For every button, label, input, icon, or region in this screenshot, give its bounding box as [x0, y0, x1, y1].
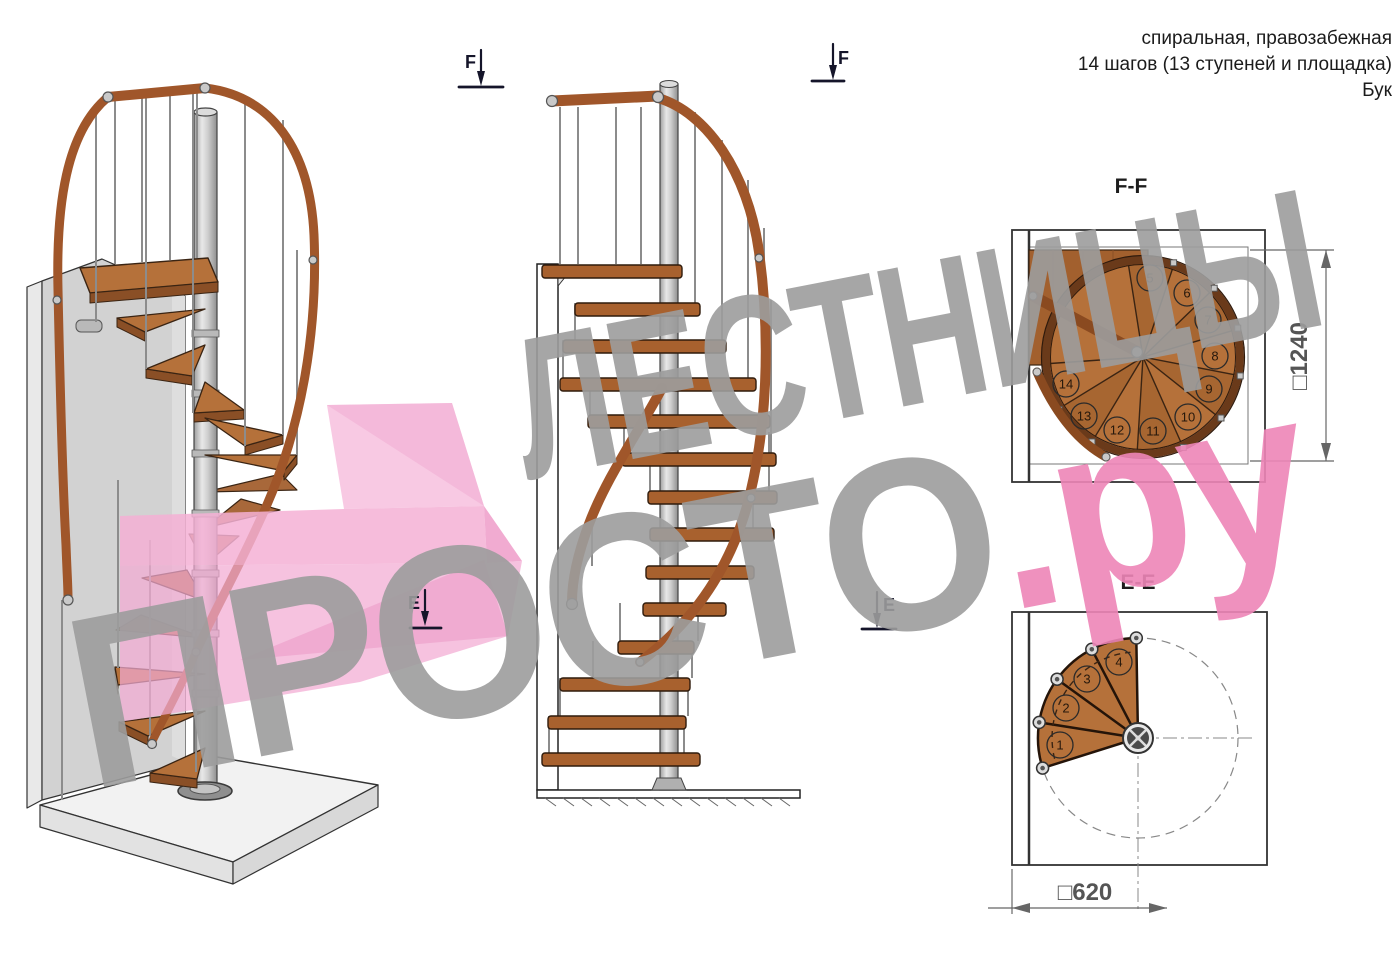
ff-step-number: 5 — [1146, 271, 1153, 286]
staircase-elevation-view — [537, 81, 800, 807]
section-ee-title: E-E — [1120, 571, 1155, 594]
ff-step-number: 9 — [1205, 382, 1212, 397]
ff-step-number: 11 — [1146, 424, 1160, 439]
ee-dimension: □620 — [988, 869, 1167, 914]
ee-step-number: 3 — [1083, 672, 1090, 687]
floor-elevation — [537, 790, 800, 806]
marker-e-label: E — [408, 593, 420, 613]
ee-step-number: 1 — [1056, 738, 1063, 753]
ee-step-number: 2 — [1062, 701, 1069, 716]
ee-step-number: 4 — [1115, 655, 1122, 670]
section-ff-title: F-F — [1115, 175, 1148, 198]
technical-drawing-canvas: F-F — [0, 0, 1400, 961]
staircase-drawing-page: F-F — [0, 0, 1400, 961]
marker-f-label: F — [465, 52, 476, 72]
ff-step-number: 10 — [1181, 410, 1195, 425]
marker-f-label: F — [838, 48, 849, 68]
section-marker-f-right: F — [812, 44, 849, 81]
section-marker-f-left: F — [459, 50, 503, 87]
ff-step-number: 12 — [1110, 423, 1124, 438]
spec-steps: 14 шагов (13 ступеней и площадка) — [1078, 52, 1392, 78]
marker-e-label: E — [883, 595, 895, 615]
section-marker-e-right: E — [862, 592, 896, 629]
staircase-3d-view — [27, 83, 378, 884]
spec-type: спиральная, правозабежная — [1078, 26, 1392, 52]
ff-step-number: 13 — [1077, 409, 1091, 424]
ff-dimension-label: □1240 — [1286, 322, 1313, 390]
section-ff-view: F-F — [1012, 175, 1334, 482]
spec-header: спиральная, правозабежная 14 шагов (13 с… — [1078, 26, 1392, 104]
ff-step-number: 14 — [1059, 377, 1073, 392]
ee-center-hub — [1123, 723, 1153, 753]
ff-step-number: 7 — [1204, 313, 1211, 328]
ee-dimension-label: □620 — [1058, 879, 1113, 906]
ff-step-number: 8 — [1211, 349, 1218, 364]
ff-step-number: 6 — [1183, 286, 1190, 301]
section-ee-view: E-E — [988, 571, 1267, 914]
wall-mount-bracket — [76, 320, 102, 332]
spec-material: Бук — [1078, 78, 1392, 104]
